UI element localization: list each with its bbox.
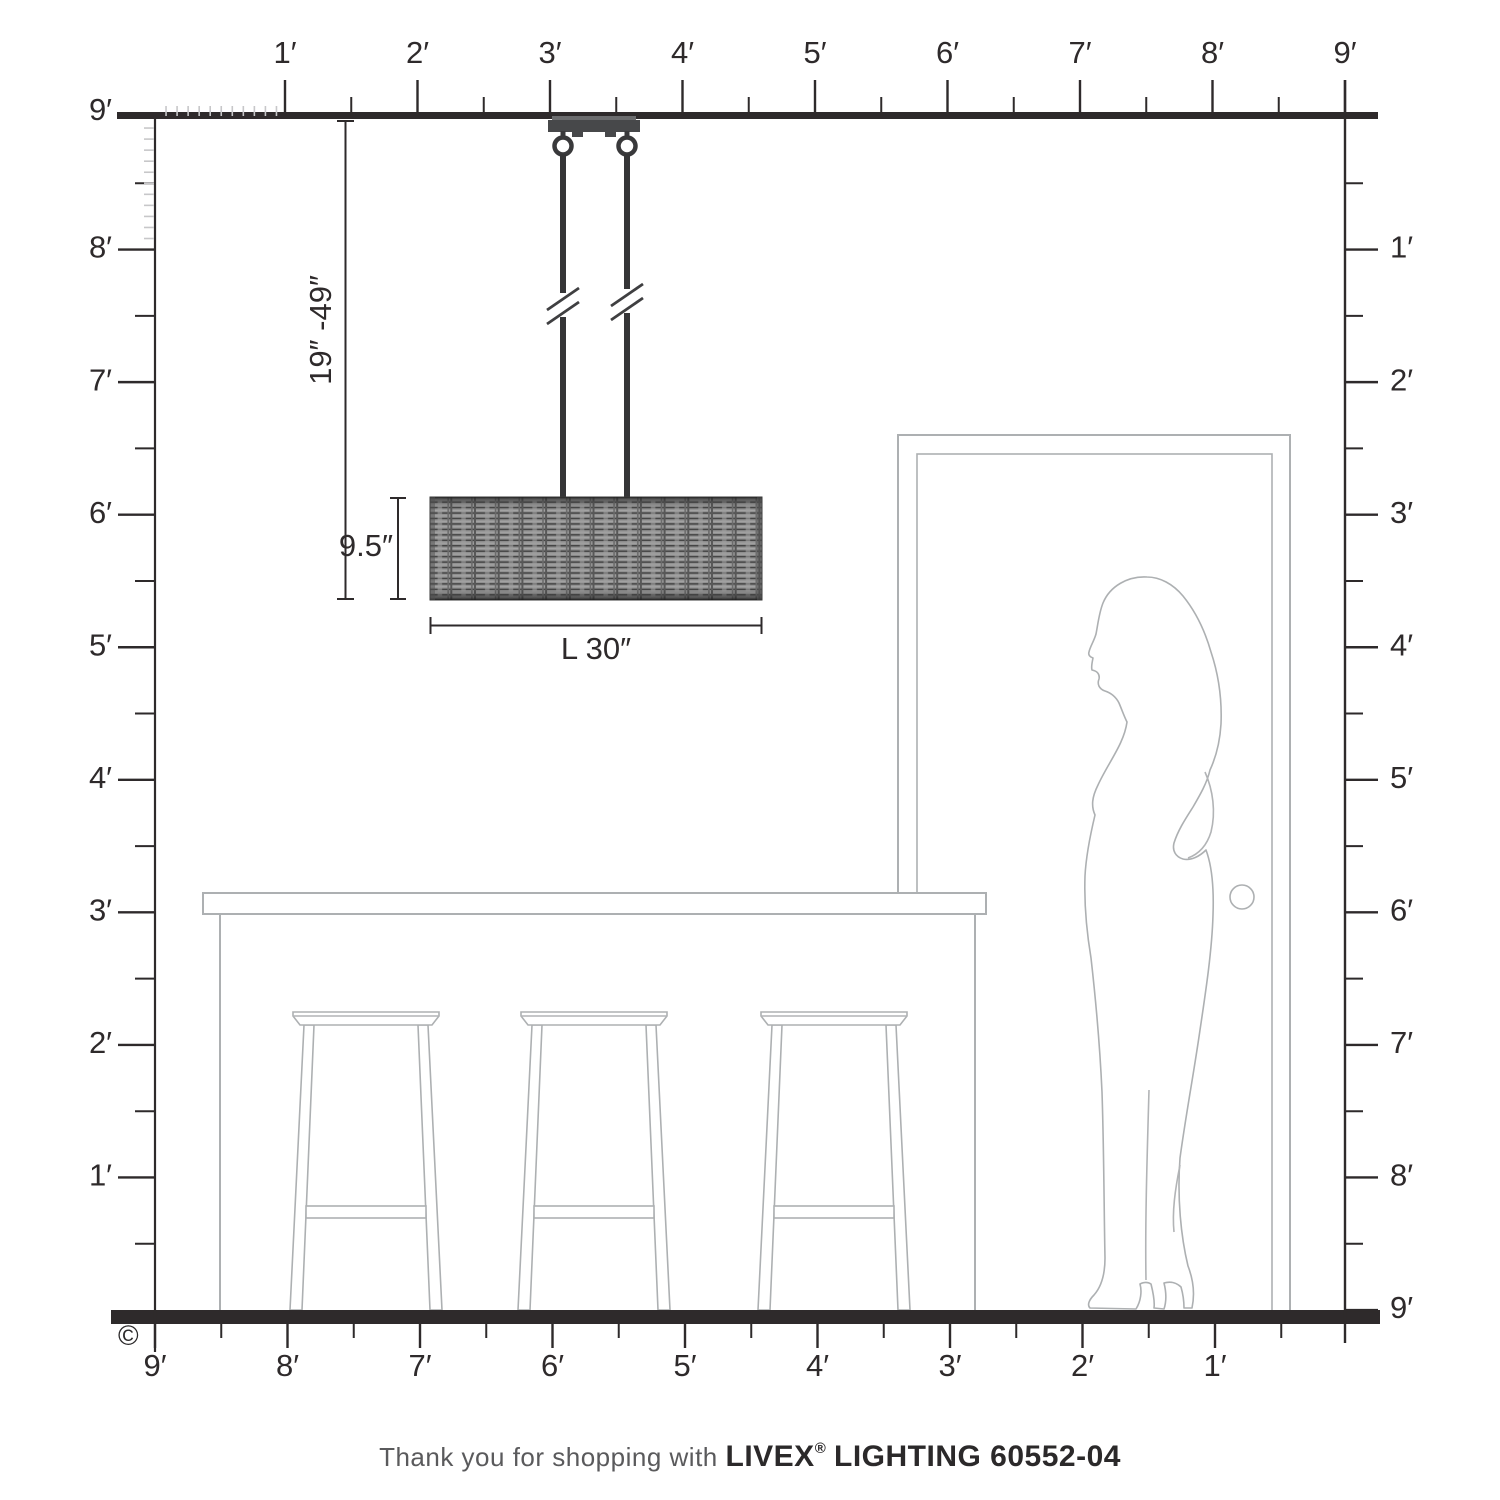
ruler-label: 2′ [89, 1025, 112, 1060]
copyright-mark: © [118, 1320, 139, 1352]
ruler-label: 1′ [89, 1158, 112, 1193]
ruler-label: 5′ [1390, 760, 1413, 795]
ruler-label: 7′ [408, 1348, 431, 1383]
drop-dimension-label: 19″ -49″ [303, 275, 338, 385]
ruler-label: 5′ [803, 35, 826, 70]
ruler-label: 6′ [1390, 893, 1413, 928]
ruler-label: 8′ [1201, 35, 1224, 70]
floor-line [111, 1310, 1380, 1324]
downrods [563, 154, 627, 499]
ruler-label: 3′ [938, 1348, 961, 1383]
ruler-label: 4′ [671, 35, 694, 70]
ruler-label: 9′ [1390, 1290, 1413, 1325]
shade-height-label: 9.5″ [339, 528, 393, 563]
ruler-label: 2′ [1390, 362, 1413, 397]
countertop [203, 893, 986, 914]
footer-thanks: Thank you for shopping with [379, 1442, 718, 1472]
ruler-label: 8′ [1390, 1158, 1413, 1193]
brand-name: LIVEX® [726, 1440, 827, 1473]
hang-ring [619, 138, 636, 155]
ruler-bottom: 9′8′7′6′5′4′3′2′1′ [143, 1324, 1281, 1383]
ruler-label: 8′ [89, 230, 112, 265]
dimension-diagram: 1′2′3′4′5′6′7′8′9′ 9′8′7′6′5′4′3′2′1′ 1′… [0, 0, 1500, 1500]
ceiling-line [117, 112, 1378, 119]
ruler-label: 4′ [1390, 627, 1413, 662]
ruler-right: 1′2′3′4′5′6′7′8′9′ [1345, 183, 1413, 1325]
ruler-label: 1′ [1390, 230, 1413, 265]
ruler-label: 5′ [673, 1348, 696, 1383]
ruler-label: 9′ [89, 92, 112, 127]
ruler-label: 6′ [541, 1348, 564, 1383]
ruler-label: 9′ [143, 1348, 166, 1383]
footer-note: Thank you for shopping with LIVEX® LIGHT… [0, 1440, 1500, 1474]
ruler-label: 9′ [1333, 35, 1356, 70]
shade-width-label: L 30″ [561, 631, 631, 666]
ruler-label: 8′ [276, 1348, 299, 1383]
door-knob [1230, 885, 1254, 909]
ruler-label: 3′ [89, 893, 112, 928]
ruler-label: 2′ [1071, 1348, 1094, 1383]
ruler-label: 1′ [1203, 1348, 1226, 1383]
diagram-canvas: 1′2′3′4′5′6′7′8′9′ 9′8′7′6′5′4′3′2′1′ 1′… [0, 0, 1500, 1500]
ruler-label: 6′ [89, 495, 112, 530]
ruler-label: 2′ [406, 35, 429, 70]
kitchen-island [203, 893, 986, 1311]
ruler-label: 5′ [89, 627, 112, 662]
registered-mark: ® [815, 1440, 827, 1457]
ruler-left: 9′8′7′6′5′4′3′2′1′ [89, 92, 155, 1244]
ruler-label: 7′ [1390, 1025, 1413, 1060]
ruler-top: 1′2′3′4′5′6′7′8′9′ [166, 35, 1357, 117]
ruler-label: 3′ [1390, 495, 1413, 530]
hang-ring [555, 138, 572, 155]
ruler-label: 7′ [89, 362, 112, 397]
ruler-label: 7′ [1068, 35, 1091, 70]
ruler-label: 3′ [538, 35, 561, 70]
ruler-label: 1′ [273, 35, 296, 70]
ruler-label: 6′ [936, 35, 959, 70]
ruler-label: 4′ [89, 760, 112, 795]
drum-shade [430, 497, 762, 600]
ruler-label: 4′ [806, 1348, 829, 1383]
product-number: LIGHTING 60552-04 [834, 1440, 1121, 1473]
pendant-fixture [430, 116, 762, 600]
